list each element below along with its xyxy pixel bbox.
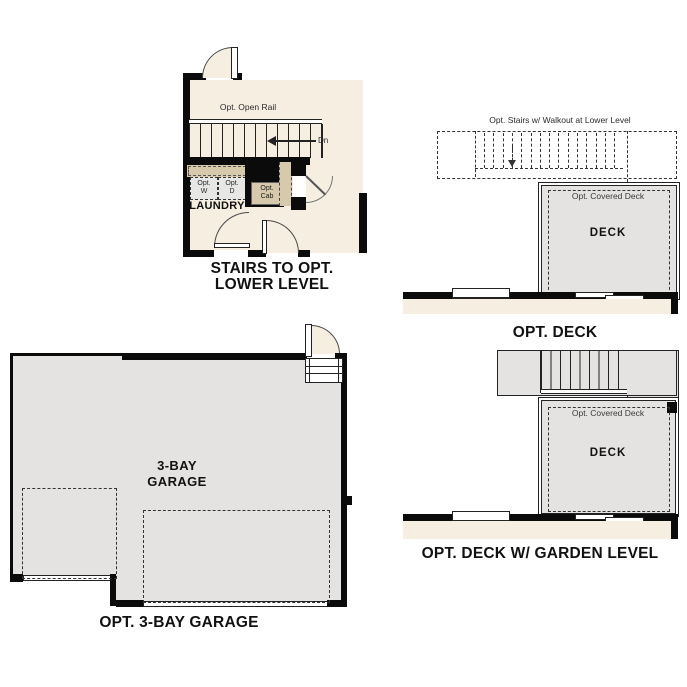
dashed-tread <box>503 133 504 168</box>
garden-wall-right-return <box>671 514 678 539</box>
dashed-tread <box>521 133 522 168</box>
deck-label: DECK <box>548 227 668 239</box>
house-interior-strip <box>403 299 671 314</box>
side-wall-upper <box>291 160 306 176</box>
dashed-tread <box>605 133 606 168</box>
down-arrow-line <box>276 140 316 142</box>
opt-stairs-tread-base <box>475 168 623 169</box>
cab-label-2: Cab <box>261 193 274 200</box>
down-label: Dn <box>318 136 328 145</box>
plan-stairs-caption: STAIRS TO OPT. LOWER LEVEL <box>182 261 362 293</box>
dashed-tread <box>549 133 550 168</box>
house-wall-right-return <box>671 292 678 314</box>
side-wall-lower <box>291 197 306 210</box>
garage-bay-left <box>22 488 117 579</box>
dashed-tread <box>568 133 569 168</box>
garage-entry-leaf <box>305 324 312 357</box>
floorplan-sheet: Opt. Open Rail Dn Opt. W Opt. D LAUNDRY <box>0 0 687 687</box>
garden-interior-strip <box>403 521 671 539</box>
dryer-label-1: Opt. <box>225 180 238 187</box>
garden-deck-label: DECK <box>548 447 668 459</box>
garage-wall-bottom-mid <box>116 600 143 607</box>
entry-door-swing <box>202 47 233 78</box>
walkout-stairs-note: Opt. Stairs w/ Walkout at Lower Level <box>430 116 687 125</box>
opt-stairs-right-divider <box>627 131 628 182</box>
plan-garage-caption: OPT. 3-BAY GARAGE <box>79 615 279 631</box>
dryer-label-2: D <box>229 188 234 195</box>
entry-steps <box>305 358 343 383</box>
laundry-counter-dash <box>188 166 246 176</box>
garage-wall-left <box>10 353 13 582</box>
cab-label-1: Opt. <box>260 185 273 192</box>
open-rail-label: Opt. Open Rail <box>178 103 318 112</box>
plan-stairs-caption-line2: LOWER LEVEL <box>215 276 329 293</box>
dashed-tread <box>614 133 615 168</box>
washer-label-2: W <box>201 188 208 195</box>
laundry-counter <box>187 165 247 177</box>
dashed-tread <box>484 133 485 168</box>
step-rail-right <box>338 359 339 382</box>
plan-stairs-caption-line1: STAIRS TO OPT. <box>211 260 334 277</box>
side-door-opening <box>293 176 306 197</box>
dashed-tread <box>493 133 494 168</box>
garage-wall-top-thin <box>10 353 122 356</box>
covered-deck-label: Opt. Covered Deck <box>548 192 668 201</box>
dashed-tread <box>531 133 532 168</box>
garden-stairs-treads <box>541 351 627 389</box>
garage-entry-swing <box>311 325 340 354</box>
dashed-tread <box>540 133 541 168</box>
wall-bottom-3 <box>298 250 310 257</box>
window <box>452 288 510 299</box>
dashed-tread <box>577 133 578 168</box>
opt-washer-box: Opt. W <box>190 177 218 200</box>
garage-wall-right-lower <box>341 503 347 607</box>
garden-covered-deck-dashed <box>548 407 670 512</box>
opt-stairs-treads <box>484 133 624 168</box>
wall-right-stub <box>359 193 367 253</box>
garage-room-label-line2: GARAGE <box>147 474 206 489</box>
down-arrow-head <box>267 136 276 146</box>
opt-stairs-direction-arrow <box>508 160 516 167</box>
covered-deck-dashed <box>548 190 670 295</box>
step-rail-left <box>309 359 310 382</box>
opt-stairs-direction-line <box>512 146 513 161</box>
opt-stairs-landing-divider <box>475 131 476 177</box>
dashed-tread <box>596 133 597 168</box>
wall-bottom-1 <box>183 250 214 257</box>
garage-bay-right <box>143 510 330 603</box>
door-b-leaf <box>262 220 267 254</box>
door-a-leaf <box>214 243 250 248</box>
washer-label-1: Opt. <box>197 180 210 187</box>
dashed-tread <box>558 133 559 168</box>
dashed-tread <box>586 133 587 168</box>
garage-wall-top-thick <box>122 353 307 360</box>
laundry-label: LAUNDRY <box>189 200 245 212</box>
opt-dryer-box: Opt. D <box>218 177 246 200</box>
garage-corner-bottom-right <box>327 600 347 607</box>
plan-garden-caption: OPT. DECK W/ GARDEN LEVEL <box>390 546 687 562</box>
garage-room-label-line1: 3-BAY <box>157 458 197 473</box>
garage-room-label: 3-BAY GARAGE <box>107 458 247 490</box>
step-line-2 <box>306 373 342 374</box>
plan-deck-caption: OPT. DECK <box>455 325 655 341</box>
garden-stairs-base-line <box>541 389 627 394</box>
step-line-1 <box>306 366 342 367</box>
entry-door-leaf <box>231 47 238 79</box>
garden-covered-deck-label: Opt. Covered Deck <box>548 409 668 418</box>
door-opening-a <box>214 250 248 257</box>
